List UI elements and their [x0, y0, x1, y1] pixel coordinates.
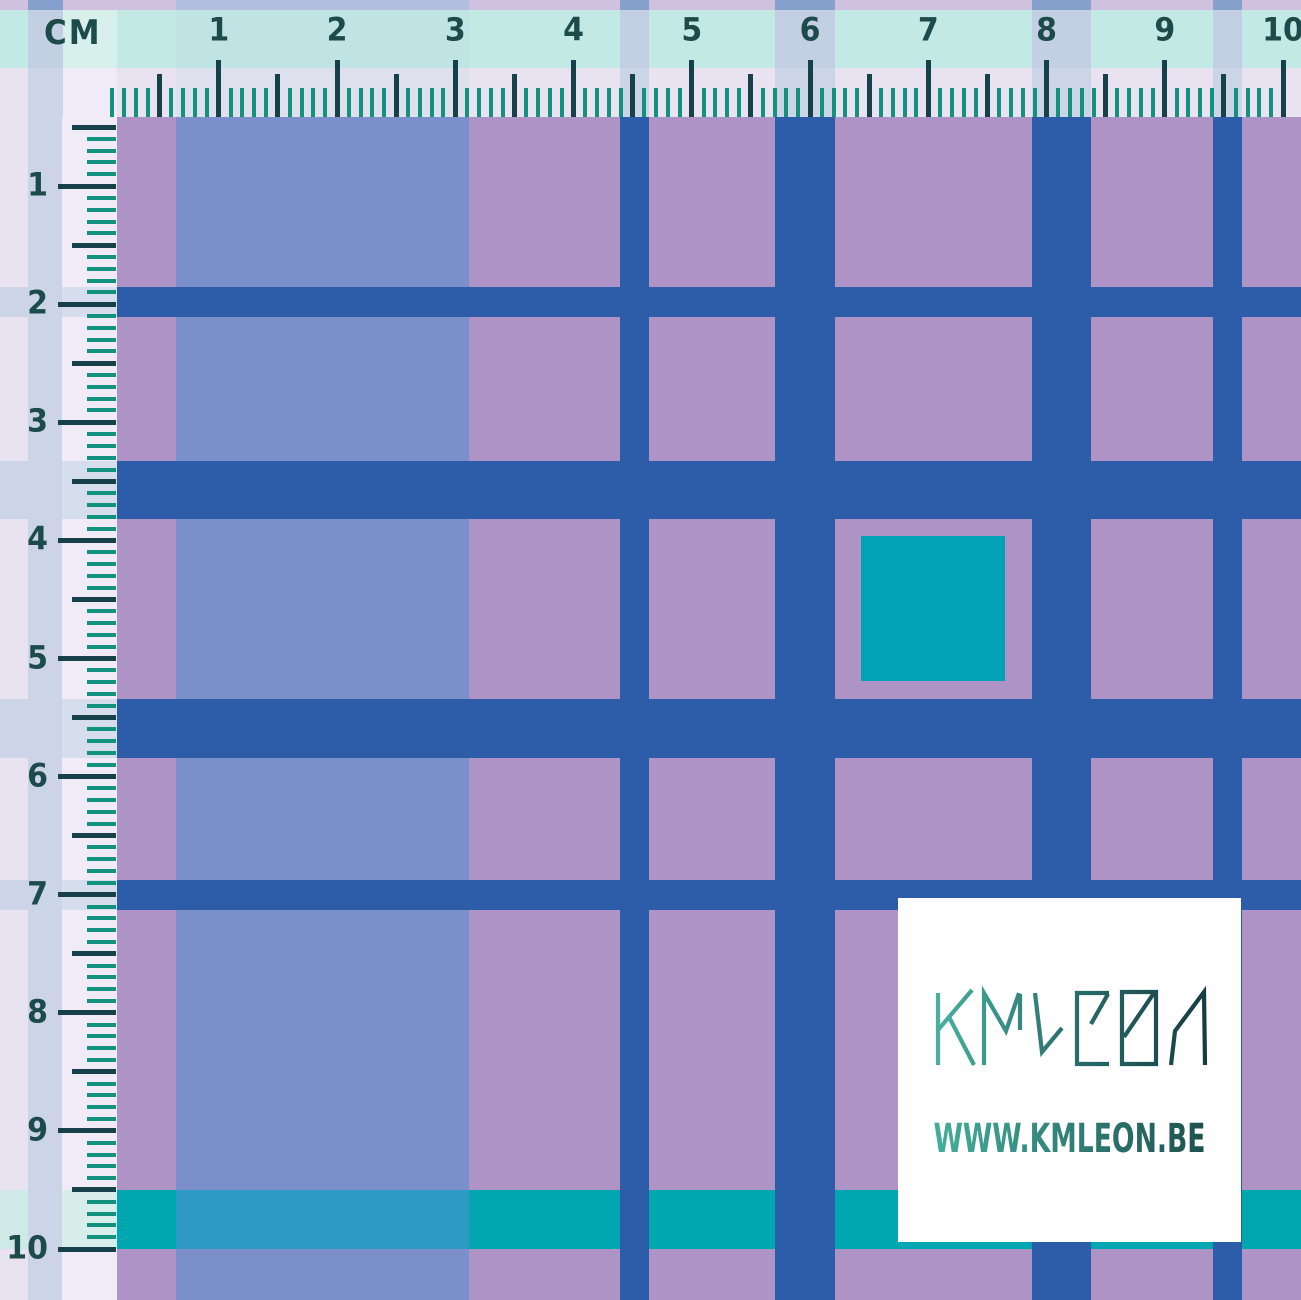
left-ruler-tick [58, 656, 116, 661]
left-ruler-tick [87, 503, 116, 507]
left-ruler-tick [87, 916, 116, 920]
left-ruler-tick [58, 1128, 116, 1133]
left-ruler-tick [87, 586, 116, 590]
top-ruler-tick [406, 88, 410, 117]
left-ruler-tick [87, 208, 116, 212]
left-ruler-tick [87, 940, 116, 944]
left-ruler-tick [87, 633, 116, 637]
left-ruler-tick [87, 964, 116, 968]
top-ruler-number: 1 [194, 13, 244, 50]
top-ruler-tick [288, 88, 292, 117]
top-ruler-tick [347, 88, 351, 117]
top-ruler-tick [1044, 60, 1049, 117]
top-ruler-tick [1103, 74, 1108, 117]
left-ruler-tick [58, 892, 116, 897]
left-ruler-tick [87, 1058, 116, 1062]
top-ruler-tick [418, 88, 422, 117]
left-ruler-tick [87, 905, 116, 909]
left-ruler-tick [87, 680, 116, 684]
left-ruler-tick [87, 1093, 116, 1097]
top-ruler-tick [252, 88, 256, 117]
left-ruler: 12345678910 [0, 0, 117, 1300]
top-ruler-tick [702, 88, 706, 117]
top-ruler-tick [477, 88, 481, 117]
left-ruler-tick [87, 1034, 116, 1038]
left-ruler-tick [87, 349, 116, 353]
top-ruler-tick [146, 88, 150, 117]
left-ruler-tick [87, 999, 116, 1003]
top-ruler-tick [335, 60, 340, 117]
top-ruler-tick [1186, 88, 1190, 117]
brand-url: WWW.KMLEON.BE [928, 1108, 1211, 1164]
left-ruler-number: 2 [4, 286, 48, 323]
top-ruler-tick [323, 88, 327, 117]
top-ruler-tick [737, 88, 741, 117]
left-ruler-tick [87, 763, 116, 767]
top-ruler-number: 5 [667, 13, 717, 50]
top-ruler-tick [725, 88, 729, 117]
top-ruler-tick [938, 88, 942, 117]
left-ruler-tick [87, 562, 116, 566]
left-ruler-tick [87, 845, 116, 849]
top-ruler-tick [1257, 88, 1261, 117]
left-ruler-tick [72, 1069, 116, 1074]
left-ruler-tick [87, 574, 116, 578]
left-ruler-tick [87, 515, 116, 519]
blue-wide-row-1 [0, 461, 1301, 519]
left-ruler-tick [87, 727, 116, 731]
left-ruler-tick [87, 385, 116, 389]
top-ruler-tick [370, 88, 374, 117]
left-ruler-tick [87, 1046, 116, 1050]
left-ruler-tick [87, 149, 116, 153]
top-ruler-tick [903, 88, 907, 117]
left-ruler-tick [87, 408, 116, 412]
left-ruler-tick [87, 255, 116, 259]
top-ruler-number: 7 [903, 13, 953, 50]
top-ruler-tick [453, 60, 458, 117]
left-ruler-tick [58, 538, 116, 543]
left-ruler-tick [58, 302, 116, 307]
blue-narrow-row-1 [0, 287, 1301, 317]
brand-card: WWW.KMLEON.BE [898, 898, 1241, 1242]
periwinkle-column [176, 0, 469, 1300]
top-ruler-tick [359, 88, 363, 117]
top-ruler-tick [689, 60, 694, 117]
left-ruler-tick [87, 527, 116, 531]
left-ruler-tick [72, 361, 116, 366]
top-ruler-tick [796, 88, 800, 117]
top-ruler-tick [619, 88, 623, 117]
top-ruler-tick [891, 88, 895, 117]
left-ruler-tick [72, 715, 116, 720]
left-ruler-tick [72, 833, 116, 838]
left-ruler-tick [87, 444, 116, 448]
top-ruler-tick [110, 88, 114, 117]
top-ruler-tick [134, 88, 138, 117]
left-ruler-tick [87, 1235, 116, 1239]
left-ruler-tick [87, 1117, 116, 1121]
top-ruler-tick [1080, 88, 1084, 117]
top-ruler-tick [216, 60, 221, 117]
left-ruler-number: 4 [4, 522, 48, 559]
top-ruler-tick [394, 74, 399, 117]
top-ruler-tick [867, 74, 872, 117]
blue-wide-column-1 [775, 0, 835, 1300]
left-ruler-tick [87, 645, 116, 649]
top-ruler-tick [157, 74, 162, 117]
top-ruler-tick [678, 88, 682, 117]
left-ruler-tick [72, 125, 116, 130]
left-ruler-tick [72, 597, 116, 602]
top-ruler-tick [1127, 88, 1131, 117]
top-ruler-tick [275, 74, 280, 117]
left-ruler-tick [87, 468, 116, 472]
top-ruler-tick [1056, 88, 1060, 117]
left-ruler-tick [87, 172, 116, 176]
top-ruler-tick [914, 88, 918, 117]
brand-logo-letters [938, 990, 1205, 1065]
left-ruler-number: 8 [4, 994, 48, 1031]
top-ruler-tick [536, 88, 540, 117]
left-ruler-tick [87, 704, 116, 708]
left-ruler-tick [87, 338, 116, 342]
left-ruler-tick [87, 456, 116, 460]
blue-narrow-column-1 [620, 0, 649, 1300]
top-ruler-number: 10 [1258, 13, 1301, 50]
left-ruler-tick [87, 810, 116, 814]
top-ruler-tick [465, 88, 469, 117]
top-ruler-number: 3 [430, 13, 480, 50]
brand-url-text: WWW.KMLEON.BE [934, 1116, 1206, 1162]
top-ruler-tick [1269, 88, 1273, 117]
left-ruler-tick [87, 1105, 116, 1109]
top-ruler-tick [1198, 88, 1202, 117]
left-ruler-tick [87, 609, 116, 613]
top-ruler-tick [560, 88, 564, 117]
top-ruler-tick [430, 88, 434, 117]
top-ruler-tick [950, 88, 954, 117]
brand-logo [932, 986, 1212, 1070]
left-ruler-tick [87, 822, 116, 826]
left-ruler-tick [87, 668, 116, 672]
left-ruler-tick [87, 550, 116, 554]
top-ruler-tick [512, 74, 517, 117]
top-ruler-tick [205, 88, 209, 117]
top-ruler-tick [997, 88, 1001, 117]
left-ruler-tick [87, 786, 116, 790]
top-ruler-tick [985, 74, 990, 117]
top-ruler-number: 4 [549, 13, 599, 50]
top-ruler-tick [1151, 88, 1155, 117]
lavender-band-light-tint [62, 68, 117, 117]
top-ruler-tick [1281, 60, 1286, 117]
top-ruler-tick [1246, 88, 1250, 117]
left-ruler-tick [58, 420, 116, 425]
lavender-band-blue-tint [28, 68, 63, 117]
left-ruler-tick [87, 869, 116, 873]
top-ruler-tick [879, 88, 883, 117]
left-ruler-tick [58, 1247, 116, 1252]
top-ruler-tick [642, 88, 646, 117]
left-ruler-tick [87, 137, 116, 141]
top-ruler-tick [1234, 88, 1238, 117]
top-ruler-tick [229, 88, 233, 117]
top-ruler-tick [761, 88, 765, 117]
top-ruler-tick [548, 88, 552, 117]
top-ruler: 12345678910 CM [0, 0, 1301, 117]
top-ruler-tick [583, 88, 587, 117]
left-ruler-tick [87, 373, 116, 377]
top-ruler-tick [1033, 88, 1037, 117]
top-ruler-tick [820, 88, 824, 117]
left-ruler-number: 7 [4, 876, 48, 913]
cyan-band-blue-tint [620, 10, 649, 68]
left-ruler-tick [87, 1212, 116, 1216]
top-ruler-tick [748, 74, 753, 117]
top-ruler-tick [654, 88, 658, 117]
top-ruler-tick [122, 88, 126, 117]
left-ruler-tick [87, 751, 116, 755]
left-ruler-tick [87, 432, 116, 436]
left-ruler-tick [87, 928, 116, 932]
left-ruler-tick [87, 231, 116, 235]
teal-stripe-row-on-periwinkle [176, 1190, 469, 1249]
top-ruler-tick [962, 88, 966, 117]
left-ruler-tick [58, 184, 116, 189]
top-ruler-tick [773, 88, 777, 117]
top-ruler-tick [489, 88, 493, 117]
top-ruler-tick [382, 88, 386, 117]
top-ruler-tick [808, 60, 813, 117]
left-ruler-tick [58, 774, 116, 779]
top-ruler-tick [264, 88, 268, 117]
left-ruler-tick [87, 1176, 116, 1180]
top-ruler-tick [1021, 88, 1025, 117]
top-ruler-tick [926, 60, 931, 117]
left-ruler-tick [87, 491, 116, 495]
top-ruler-number: 8 [1022, 13, 1072, 50]
left-ruler-tick [58, 1010, 116, 1015]
top-ruler-tick [666, 88, 670, 117]
left-ruler-tick [87, 987, 116, 991]
left-ruler-tick [87, 857, 116, 861]
top-ruler-tick [441, 88, 445, 117]
left-ruler-tick [87, 1023, 116, 1027]
top-ruler-tick [1175, 88, 1179, 117]
top-ruler-tick [240, 88, 244, 117]
top-ruler-tick [169, 88, 173, 117]
left-ruler-number: 10 [4, 1231, 48, 1268]
left-ruler-tick [87, 290, 116, 294]
top-ruler-tick [1210, 88, 1214, 117]
blue-wide-row-2 [0, 699, 1301, 758]
top-ruler-tick [855, 88, 859, 117]
top-ruler-tick [595, 88, 599, 117]
left-ruler-tick [87, 267, 116, 271]
top-ruler-tick [311, 88, 315, 117]
left-ruler-tick [87, 1223, 116, 1227]
left-ruler-tick [72, 1187, 116, 1192]
fabric-pattern-preview: 12345678910 12345678910 CM [0, 0, 1301, 1300]
top-ruler-number: 9 [1140, 13, 1190, 50]
top-ruler-tick [974, 88, 978, 117]
top-ruler-tick [193, 88, 197, 117]
top-highlight-sliver [0, 0, 1301, 10]
left-ruler-tick [87, 1082, 116, 1086]
left-ruler-tick [87, 220, 116, 224]
top-ruler-number: 6 [785, 13, 835, 50]
left-ruler-tick [87, 196, 116, 200]
left-ruler-number: 1 [4, 168, 48, 205]
top-ruler-tick [784, 88, 788, 117]
left-ruler-tick [87, 314, 116, 318]
left-ruler-tick [87, 975, 116, 979]
left-ruler-number: 6 [4, 758, 48, 795]
left-ruler-tick [87, 621, 116, 625]
left-ruler-number: 3 [4, 404, 48, 441]
left-ruler-tick [87, 160, 116, 164]
left-ruler-tick [87, 739, 116, 743]
left-ruler-tick [87, 798, 116, 802]
left-ruler-tick [87, 1200, 116, 1204]
top-ruler-tick [1162, 60, 1167, 117]
left-ruler-tick [87, 881, 116, 885]
left-ruler-tick [72, 951, 116, 956]
unit-label: CM [44, 13, 102, 53]
top-ruler-tick [501, 88, 505, 117]
left-ruler-tick [87, 326, 116, 330]
cyan-band-blue-tint [1213, 10, 1242, 68]
top-ruler-tick [1139, 88, 1143, 117]
top-ruler-tick [630, 74, 635, 117]
left-ruler-tick [72, 243, 116, 248]
left-ruler-number: 9 [4, 1113, 48, 1150]
top-ruler-tick [832, 88, 836, 117]
top-ruler-tick [607, 88, 611, 117]
top-ruler-tick [843, 88, 847, 117]
left-ruler-tick [87, 1164, 116, 1168]
top-ruler-tick [1221, 74, 1226, 117]
top-ruler-tick [1092, 88, 1096, 117]
left-ruler-tick [87, 692, 116, 696]
top-ruler-tick [1009, 88, 1013, 117]
top-ruler-tick [181, 88, 185, 117]
top-ruler-tick [524, 88, 528, 117]
left-ruler-tick [87, 1153, 116, 1157]
left-ruler-tick [87, 279, 116, 283]
top-ruler-tick [571, 60, 576, 117]
top-ruler-tick [713, 88, 717, 117]
top-ruler-tick [1115, 88, 1119, 117]
left-ruler-tick [72, 479, 116, 484]
top-ruler-number: 2 [312, 13, 362, 50]
left-ruler-tick [87, 1141, 116, 1145]
top-ruler-tick [1068, 88, 1072, 117]
left-ruler-number: 5 [4, 640, 48, 677]
left-ruler-tick [87, 397, 116, 401]
top-ruler-tick [300, 88, 304, 117]
teal-accent-square [861, 536, 1005, 681]
